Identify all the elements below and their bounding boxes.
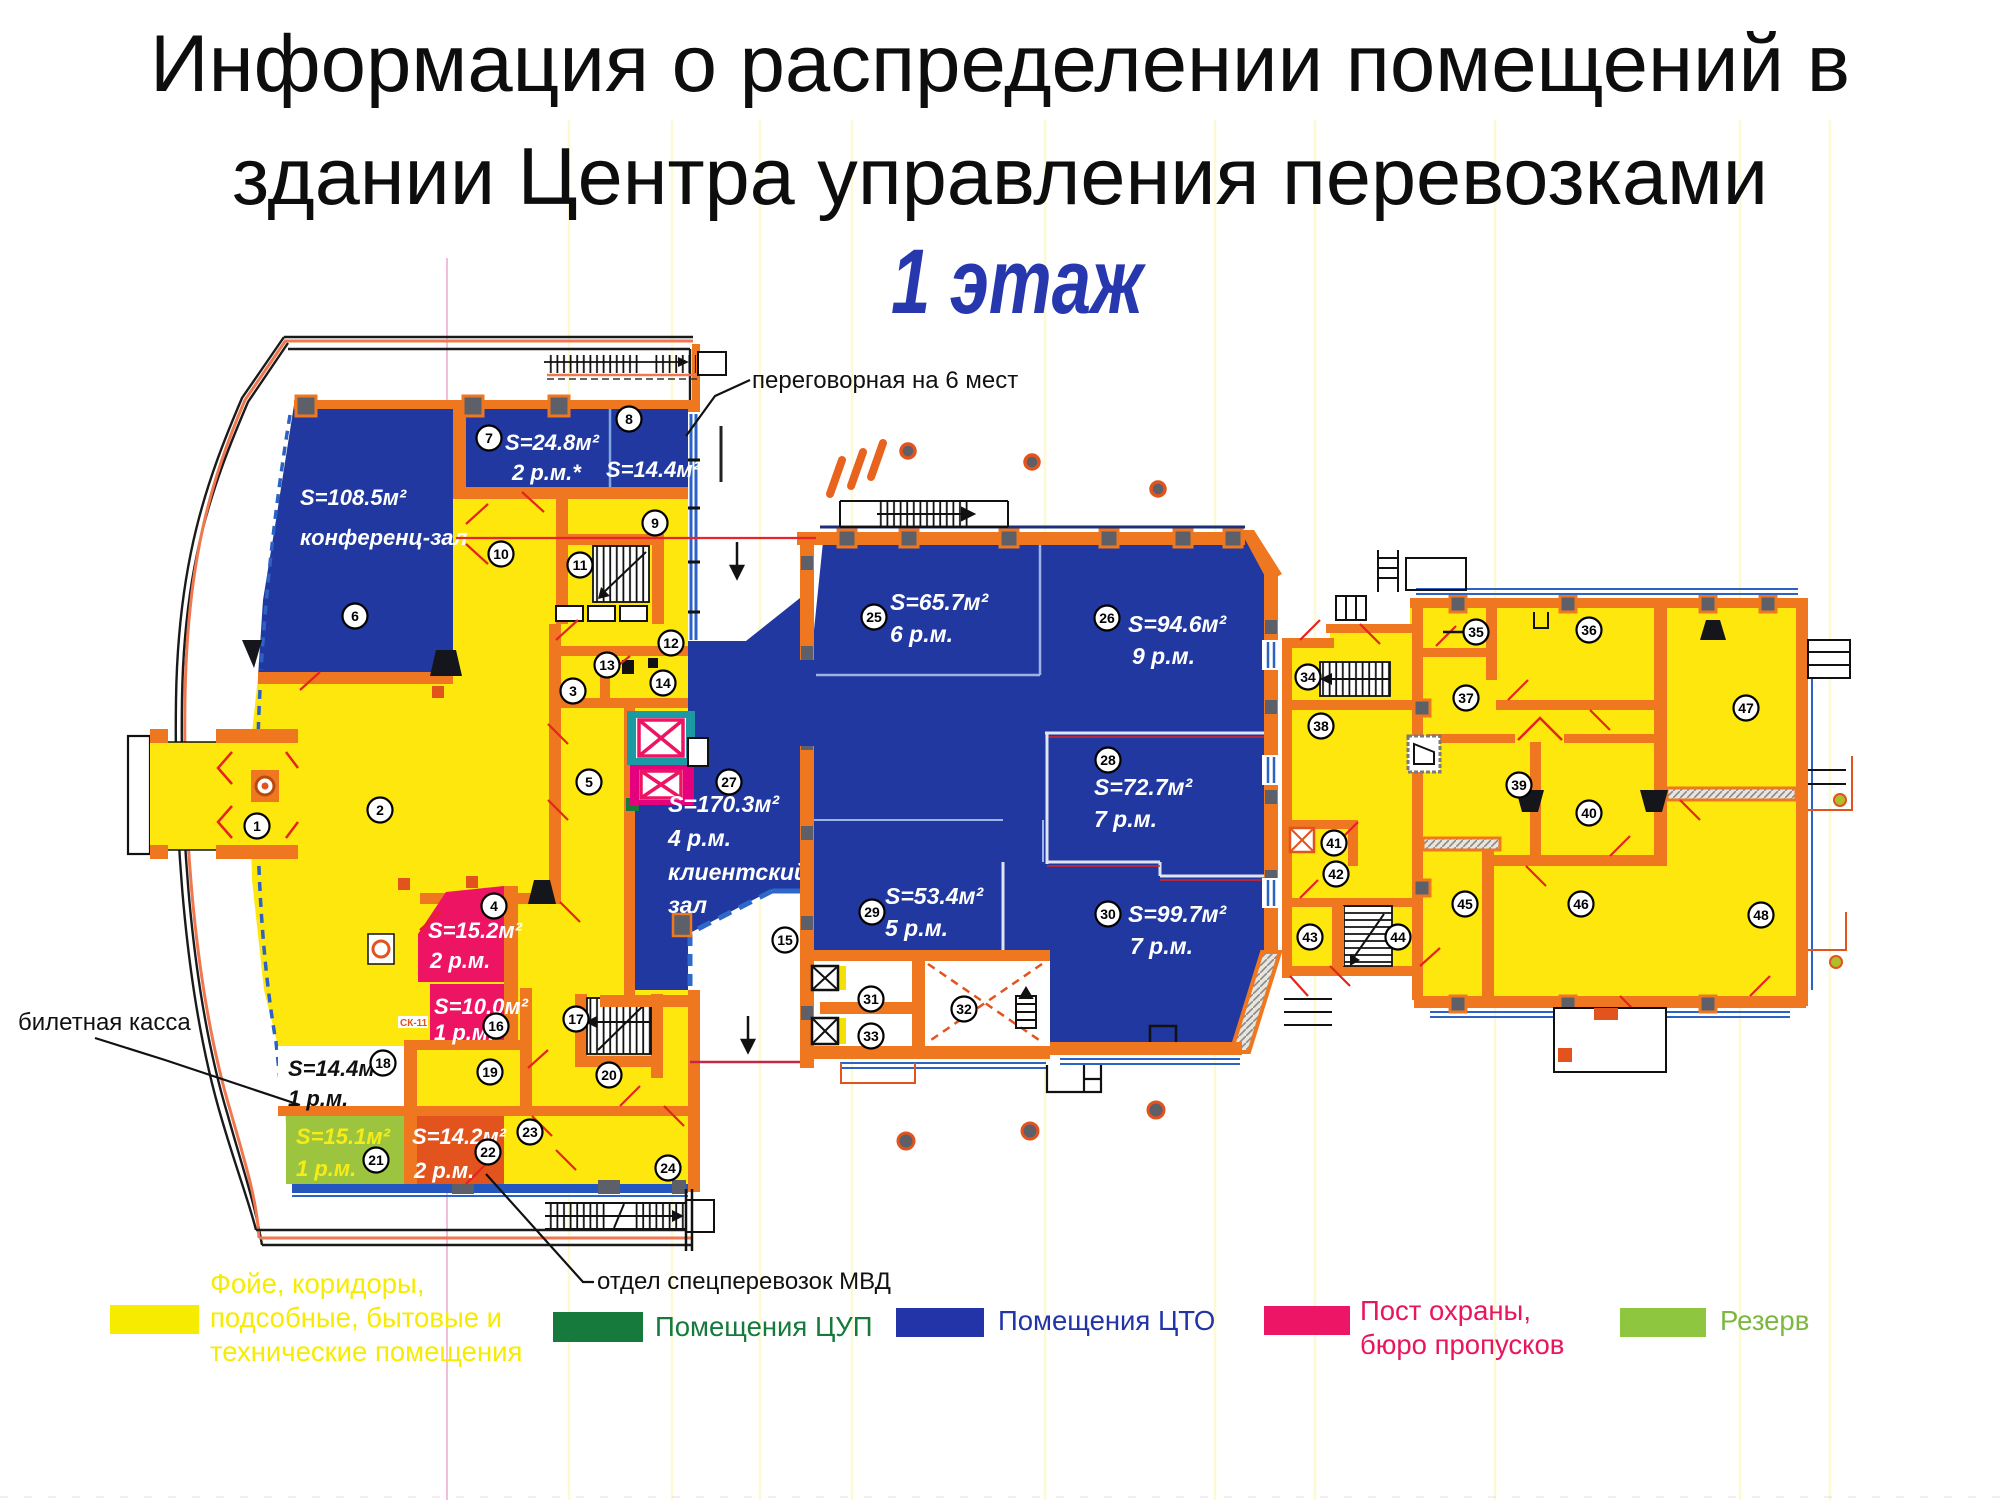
- svg-text:6: 6: [351, 608, 359, 624]
- svg-text:S=108.5м²: S=108.5м²: [300, 485, 407, 510]
- svg-text:2 р.м.*: 2 р.м.*: [511, 460, 582, 485]
- svg-text:23: 23: [522, 1124, 538, 1140]
- svg-text:Пост охраны,: Пост охраны,: [1360, 1295, 1531, 1326]
- svg-text:S=72.7м²: S=72.7м²: [1094, 774, 1194, 800]
- svg-text:2 р.м.: 2 р.м.: [413, 1158, 474, 1183]
- svg-text:конференц-зал: конференц-зал: [300, 525, 468, 550]
- svg-text:35: 35: [1468, 624, 1484, 640]
- svg-text:подсобные, бытовые и: подсобные, бытовые и: [210, 1302, 502, 1333]
- svg-text:4: 4: [490, 898, 498, 914]
- svg-text:17: 17: [568, 1011, 584, 1027]
- svg-text:S=65.7м²: S=65.7м²: [890, 589, 990, 615]
- svg-text:S=94.6м²: S=94.6м²: [1128, 611, 1228, 637]
- svg-text:27: 27: [721, 774, 737, 790]
- svg-text:37: 37: [1458, 690, 1474, 706]
- svg-text:1 этаж: 1 этаж: [891, 231, 1146, 333]
- svg-text:СК-11: СК-11: [400, 1018, 428, 1029]
- svg-text:10: 10: [493, 546, 509, 562]
- svg-text:18: 18: [375, 1055, 391, 1071]
- svg-text:7 р.м.: 7 р.м.: [1094, 806, 1157, 832]
- svg-text:1 р.м.: 1 р.м.: [288, 1086, 348, 1111]
- svg-text:15: 15: [777, 932, 793, 948]
- svg-text:9: 9: [651, 515, 659, 531]
- svg-text:30: 30: [1100, 906, 1116, 922]
- svg-text:14: 14: [655, 675, 671, 691]
- svg-text:11: 11: [573, 557, 588, 573]
- svg-text:Фойе, коридоры,: Фойе, коридоры,: [210, 1268, 424, 1299]
- svg-text:отдел спецперевозок МВД: отдел спецперевозок МВД: [597, 1268, 891, 1295]
- svg-text:S=24.8м²: S=24.8м²: [505, 430, 600, 455]
- svg-text:19: 19: [482, 1064, 498, 1080]
- svg-text:20: 20: [601, 1067, 617, 1083]
- svg-text:42: 42: [1328, 866, 1344, 882]
- svg-text:34: 34: [1300, 669, 1316, 685]
- svg-text:45: 45: [1457, 896, 1473, 912]
- svg-text:43: 43: [1302, 929, 1318, 945]
- svg-text:Информация о распределении пом: Информация о распределении помещений в: [150, 19, 1850, 109]
- svg-text:39: 39: [1511, 777, 1527, 793]
- svg-text:4 р.м.: 4 р.м.: [667, 825, 731, 851]
- svg-text:47: 47: [1738, 700, 1754, 716]
- svg-text:зал: зал: [668, 892, 707, 918]
- svg-text:S=99.7м²: S=99.7м²: [1128, 901, 1228, 927]
- svg-text:1 р.м.: 1 р.м.: [296, 1156, 356, 1181]
- svg-text:бюро пропусков: бюро пропусков: [1360, 1329, 1564, 1360]
- svg-text:S=15.2м²: S=15.2м²: [428, 918, 523, 943]
- svg-text:16: 16: [488, 1018, 504, 1034]
- svg-text:25: 25: [866, 609, 882, 625]
- svg-text:2: 2: [376, 802, 384, 818]
- svg-text:41: 41: [1326, 835, 1342, 851]
- svg-text:21: 21: [368, 1152, 384, 1168]
- svg-text:S=15.1м²: S=15.1м²: [296, 1124, 391, 1149]
- svg-text:7 р.м.: 7 р.м.: [1130, 933, 1193, 959]
- svg-text:1: 1: [253, 818, 261, 834]
- svg-text:48: 48: [1753, 907, 1769, 923]
- svg-text:38: 38: [1313, 718, 1329, 734]
- svg-text:5 р.м.: 5 р.м.: [885, 915, 948, 941]
- svg-text:9 р.м.: 9 р.м.: [1132, 643, 1195, 669]
- svg-text:24: 24: [660, 1160, 676, 1176]
- svg-text:12: 12: [663, 635, 679, 651]
- svg-text:5: 5: [585, 774, 593, 790]
- svg-text:31: 31: [863, 991, 879, 1007]
- svg-text:46: 46: [1573, 896, 1589, 912]
- svg-text:8: 8: [625, 411, 633, 427]
- svg-text:32: 32: [956, 1001, 972, 1017]
- svg-text:22: 22: [480, 1144, 496, 1160]
- svg-text:13: 13: [599, 657, 615, 673]
- svg-text:Резерв: Резерв: [1720, 1305, 1809, 1336]
- svg-text:26: 26: [1099, 610, 1115, 626]
- svg-text:Помещения ЦТО: Помещения ЦТО: [998, 1305, 1215, 1336]
- svg-text:Помещения ЦУП: Помещения ЦУП: [655, 1311, 873, 1342]
- svg-text:S=170.3м²: S=170.3м²: [668, 791, 780, 817]
- svg-text:S=53.4м²: S=53.4м²: [885, 883, 985, 909]
- svg-text:44: 44: [1390, 929, 1406, 945]
- svg-text:S=14.4м²: S=14.4м²: [288, 1056, 383, 1081]
- svg-text:S=14.4м²: S=14.4м²: [606, 457, 701, 482]
- svg-text:28: 28: [1100, 752, 1116, 768]
- svg-text:33: 33: [863, 1028, 879, 1044]
- svg-text:переговорная на 6 мест: переговорная на 6 мест: [752, 367, 1018, 394]
- svg-text:здании Центра управления перев: здании Центра управления перевозками: [232, 132, 1768, 222]
- svg-text:36: 36: [1581, 622, 1597, 638]
- svg-text:2 р.м.: 2 р.м.: [429, 948, 490, 973]
- svg-text:клиентский: клиентский: [668, 859, 808, 885]
- svg-text:билетная касса: билетная касса: [18, 1009, 191, 1036]
- svg-text:40: 40: [1581, 805, 1597, 821]
- svg-text:29: 29: [864, 904, 880, 920]
- svg-text:6 р.м.: 6 р.м.: [890, 621, 953, 647]
- svg-text:S=10.0м²: S=10.0м²: [434, 994, 529, 1019]
- svg-text:технические помещения: технические помещения: [210, 1336, 522, 1367]
- svg-text:7: 7: [485, 430, 493, 446]
- svg-text:3: 3: [569, 683, 577, 699]
